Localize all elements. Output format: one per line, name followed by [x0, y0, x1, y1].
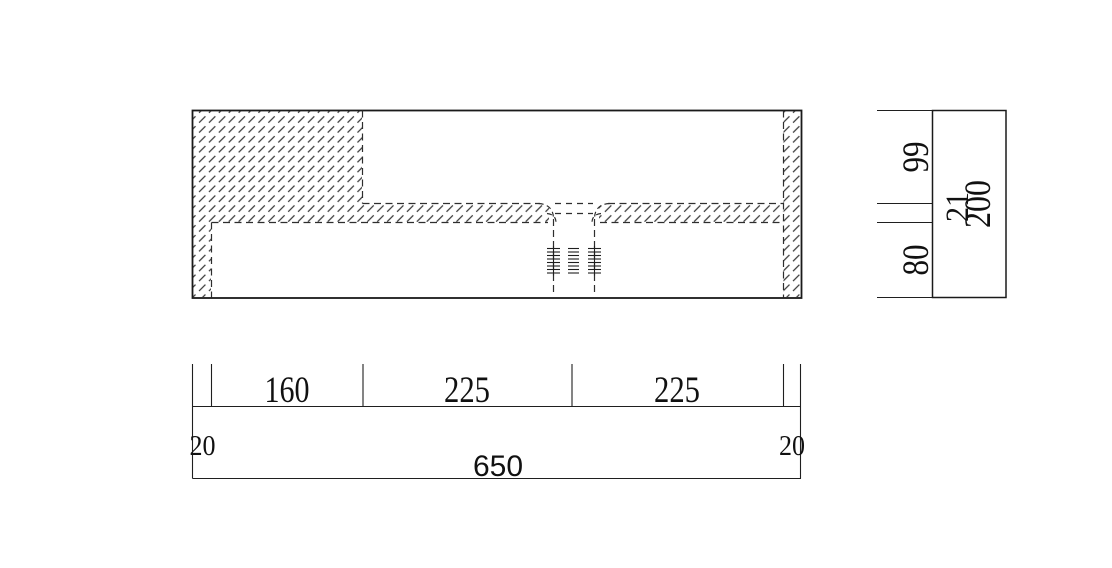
- side-elevation-view: 99 80 21 200: [877, 111, 1006, 298]
- dim-650-label: 650: [473, 450, 523, 483]
- hatch-strip-right: [599, 204, 783, 222]
- front-section-view: [193, 111, 802, 299]
- hatch-left-column: [193, 222, 211, 297]
- technical-drawing: 20 160 225 225 20 650 99 80 21 200: [0, 0, 1112, 568]
- hatch-regions: [193, 111, 801, 297]
- anchor-bolt-hidden-detail: [539, 204, 610, 297]
- dim-99-label: 99: [896, 142, 937, 173]
- hatch-top-left-block: [193, 111, 362, 222]
- cad-drawing-canvas: 20 160 225 225 20 650 99 80 21 200: [0, 0, 1112, 568]
- hatch-right-column: [784, 111, 802, 297]
- dim-225-left-label: 225: [444, 370, 490, 411]
- dim-160-label: 160: [265, 370, 310, 411]
- thread-symbol: [547, 246, 601, 276]
- dim-20-left-label: 20: [190, 431, 216, 462]
- dim-20-right-label: 20: [779, 431, 805, 462]
- bottom-dimension-chain: 20 160 225 225 20 650: [190, 364, 806, 483]
- dim-80-label: 80: [896, 245, 937, 276]
- dim-225-right-label: 225: [654, 370, 700, 411]
- hatch-strip-left: [362, 204, 549, 222]
- bolt-mouth-arcs: [539, 204, 610, 223]
- dim-200-label: 200: [958, 180, 999, 228]
